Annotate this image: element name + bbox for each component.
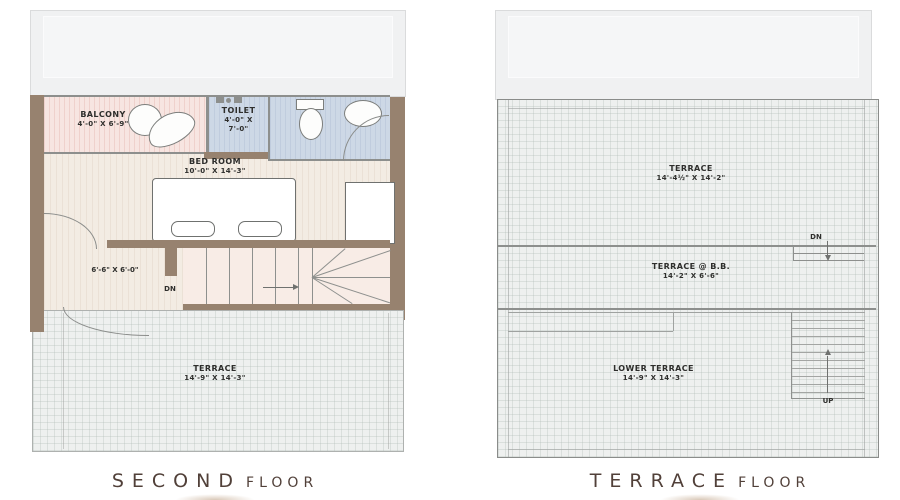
second-floor-title-main: SECOND — [112, 470, 241, 492]
staircase-down — [183, 248, 390, 304]
terrace-dim: 14'-4½" X 14'-2" — [626, 174, 756, 183]
lower-terrace-edge-top — [508, 312, 791, 313]
toilet-name: TOILET — [211, 106, 266, 116]
terrace-label: TERRACE 14'-9" X 14'-3" — [150, 364, 280, 383]
toilet-dim-1: 4'-0" X — [211, 116, 266, 125]
inner-outline-left — [508, 100, 509, 457]
stair-tread — [252, 248, 253, 304]
hall-dim-label: 6'-6" X 6'-0" — [70, 266, 160, 274]
second-floor-roof-projection — [30, 10, 406, 97]
second-floor-title-suffix: FLOOR — [246, 475, 318, 491]
dn-arrow-shaft — [827, 241, 828, 255]
stair-arrow-head — [293, 284, 299, 290]
lower-terrace-label: LOWER TERRACE 14'-9" X 14'-3" — [591, 364, 716, 383]
lower-terrace-name: LOWER TERRACE — [591, 364, 716, 374]
dn-arrow-head — [825, 255, 831, 261]
left-wall — [30, 95, 44, 332]
stair-winder-line — [312, 277, 390, 303]
terrace-floor-title: TERRACE FLOOR — [545, 470, 855, 492]
shelf-icon — [216, 97, 224, 103]
title-ornament — [175, 494, 255, 500]
second-floor-title: SECOND FLOOR — [60, 470, 370, 492]
up-arrow-shaft — [827, 356, 828, 393]
inner-outline-top — [508, 108, 865, 109]
stair-winder-line — [312, 250, 391, 278]
bed-icon — [152, 178, 296, 242]
terrace-floor-title-main: TERRACE — [590, 470, 733, 492]
pillow-icon — [238, 221, 282, 237]
lower-terrace-boundary — [498, 308, 876, 310]
section-divider — [498, 245, 876, 247]
terrace-label: TERRACE 14'-4½" X 14'-2" — [626, 164, 756, 183]
title-ornament — [660, 494, 740, 500]
terrace-name: TERRACE — [150, 364, 280, 374]
up-label: UP — [813, 397, 843, 405]
floor-plan-sheet: BALCONY 4'-0" X 6'-9" TOILET 4'-0" X 7'-… — [0, 0, 900, 500]
terrace-inner-line — [63, 313, 64, 449]
stair-tread — [229, 248, 230, 304]
stair-side-wall — [165, 248, 177, 276]
shelf-icon — [234, 97, 242, 103]
lower-terrace-step-line — [508, 331, 673, 332]
dn-label: DN — [155, 285, 185, 293]
roof-inner-outline — [508, 16, 859, 78]
stair-winder-line — [312, 277, 353, 304]
drain-icon — [226, 98, 231, 103]
stair-winder-line — [312, 277, 390, 278]
dn-label: DN — [801, 233, 831, 241]
bedroom-dim: 10'-0" X 14'-3" — [150, 167, 280, 176]
terrace-bb-label: TERRACE @ B.B. 14'-2" X 6'-6" — [626, 262, 756, 281]
toilet-dim-2: 7'-0" — [211, 125, 266, 134]
staircase-up — [791, 312, 865, 399]
terrace-floor-title-suffix: FLOOR — [738, 475, 810, 491]
stair-tread — [275, 248, 276, 304]
pillow-icon — [171, 221, 215, 237]
stair-top-wall — [107, 240, 390, 248]
inner-outline-right — [864, 100, 865, 457]
terrace-floor-body: DN UP TERRACE 14'-4½" X 14'-2" TERRACE @… — [497, 99, 879, 458]
stair-arrow-shaft — [263, 287, 293, 288]
top-wall-line — [44, 95, 390, 97]
terrace-dim: 14'-9" X 14'-3" — [150, 374, 280, 383]
toilet-label: TOILET 4'-0" X 7'-0" — [211, 106, 266, 134]
lower-terrace-dim: 14'-9" X 14'-3" — [591, 374, 716, 383]
stair-tread — [298, 248, 299, 304]
stair-tread — [206, 248, 207, 304]
terrace-inner-line — [388, 313, 389, 449]
dn-step-tread — [793, 253, 864, 254]
wc-toilet-icon — [299, 108, 323, 140]
lower-terrace-step-edge — [673, 312, 674, 331]
terrace-bb-name: TERRACE @ B.B. — [626, 262, 756, 272]
roof-inner-outline — [43, 16, 393, 78]
stair-winder-line — [312, 248, 346, 278]
terrace-wall-stub — [30, 310, 44, 332]
inner-outline-bottom — [508, 449, 865, 450]
up-arrow-head — [825, 349, 831, 355]
terrace-floor-roof-projection — [495, 10, 872, 100]
terrace-bb-dim: 14'-2" X 6'-6" — [626, 272, 756, 281]
bedroom-name: BED ROOM — [150, 157, 280, 167]
terrace-name: TERRACE — [626, 164, 756, 174]
wardrobe-icon — [345, 182, 395, 244]
bedroom-label: BED ROOM 10'-0" X 14'-3" — [150, 157, 280, 176]
